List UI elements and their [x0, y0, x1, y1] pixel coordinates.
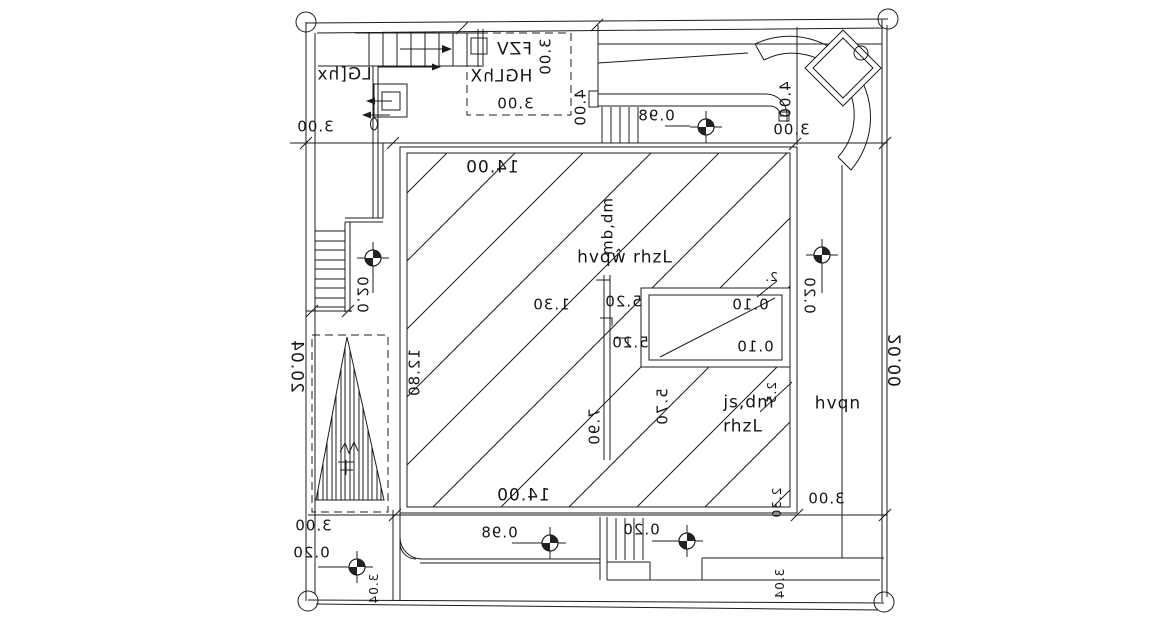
dim-label-2004: 20.04 [288, 339, 305, 393]
railing-top [589, 91, 789, 143]
room-label-corridor: hvqn [815, 396, 861, 413]
dim-label-304-right: 3.04 [774, 569, 786, 600]
dim-label-1400-top: 14.00 [465, 160, 519, 177]
benchmark-crosshair-icon [357, 242, 389, 274]
dim-label-1400-bottom: 14.00 [496, 488, 550, 505]
dim-label-300-bottom-right: 3.00 [807, 492, 844, 507]
dim-label-25: 2.5 [766, 382, 778, 404]
dim-label-box: 3.00 [496, 97, 533, 112]
room-label-box-title: FZV [496, 42, 532, 59]
ramp-area [312, 335, 388, 512]
walls-right [607, 165, 884, 580]
dim-label-box-vertical: 3.00 [539, 38, 554, 75]
dim-label-520-a: 5.20 [604, 295, 641, 310]
boundary-circle-icon [874, 592, 894, 612]
dim-label-304-left: 3.04 [368, 574, 380, 605]
dim-label-300-bottom-left: 3.00 [294, 519, 331, 534]
dim-label-098-bottom: 0.98 [480, 526, 517, 541]
room-label-box-name: HGLhX [470, 69, 533, 86]
dim-label-400-left: 4.00 [574, 89, 589, 126]
boundary-circle-icon [298, 591, 318, 611]
benchmark-crosshair-icon [671, 525, 703, 557]
dim-label-2: 2. [764, 271, 777, 283]
dim-label-790: 7.90 [588, 408, 603, 445]
dim-label-020-bottom-left: 0.20 [292, 546, 329, 561]
dim-label-010-a: 0.10 [731, 298, 768, 313]
benchmark-crosshair-icon [534, 527, 566, 559]
room-label-hall-vertical: mb,dm [601, 197, 616, 255]
dim-label-300-top-left: 3.00 [296, 120, 333, 135]
dim-label-010-b: 0.10 [736, 340, 773, 355]
diamond-column-icon [805, 30, 881, 106]
dim-label-400-right: 4.00 [779, 81, 794, 118]
dim-label-020-bottom-center: 0.20 [622, 523, 659, 538]
floor-plan-canvas: 3.00 4.00 0.98 4.00 3.00 LG[hx FZV 3.00 … [0, 0, 1155, 630]
room-label-top-left: LG[hx [316, 67, 371, 84]
dim-label-020-left: 0.20 [355, 275, 370, 312]
dim-label-2000: 20.00 [888, 334, 905, 388]
benchmark-crosshair-icon [690, 111, 722, 143]
dim-label-520-b: 5.20 [611, 336, 648, 351]
dim-label-1280: 12.80 [408, 349, 423, 397]
benchmark-crosshair-icon [806, 239, 838, 271]
room-label-hall-note: hvqŵ rhzL [577, 250, 673, 267]
dim-label-130: 1.30 [532, 298, 569, 313]
dim-label-570: 5.70 [656, 388, 671, 425]
dim-label-230: 2.30 [771, 488, 783, 519]
dim-label-098-top: 0.98 [637, 109, 674, 124]
dim-label-300-top-right: 3.00 [772, 123, 809, 138]
dim-label-020-right: 0.20 [802, 276, 817, 313]
room-label-br-note2: rhzL [723, 419, 763, 436]
